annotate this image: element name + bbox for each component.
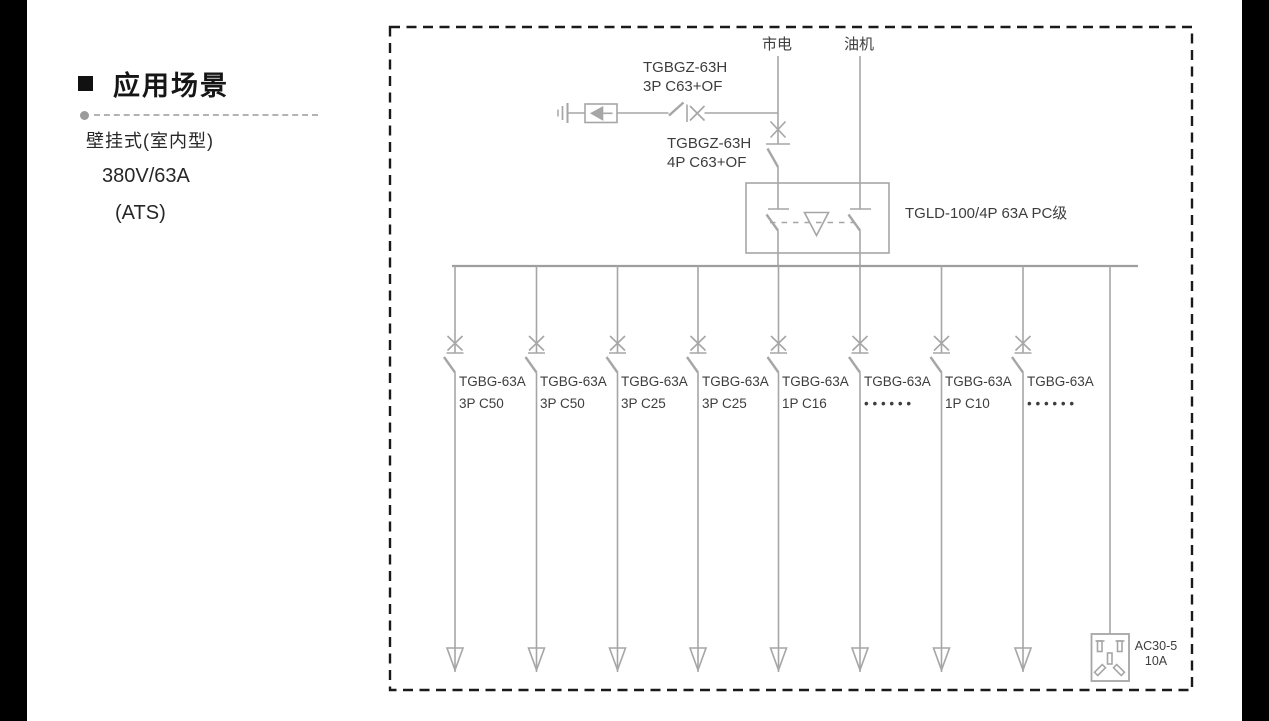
- feeder-branch-8: [1012, 266, 1032, 672]
- mains-incoming-line: [766, 56, 790, 209]
- feeder-branch-1: [444, 266, 464, 672]
- feeder-label-3: TGBG-63A 3P C25: [621, 374, 688, 412]
- spd-arrow-icon: [592, 107, 603, 119]
- feeder-label-1: TGBG-63A 3P C50: [459, 374, 526, 412]
- ats-actuator-triangle-icon: [805, 213, 829, 236]
- feeder-spec: 3P C50: [459, 396, 526, 412]
- feeder-model: TGBG-63A: [945, 374, 1012, 390]
- feeder-branch-5: [768, 266, 788, 672]
- feeder-model: TGBG-63A: [540, 374, 607, 390]
- socket-label: AC30-5 10A: [1131, 639, 1181, 669]
- spd-breaker-label: TGBGZ-63H 3P C63+OF: [643, 58, 727, 96]
- breaker-blade-icon: [768, 149, 779, 168]
- socket-rating: 10A: [1131, 654, 1181, 669]
- feeder-label-6: TGBG-63A • • • • • •: [864, 374, 931, 412]
- feeder-model: TGBG-63A: [782, 374, 849, 390]
- ats-switch-box: [746, 183, 889, 267]
- feeder-label-8: TGBG-63A • • • • • •: [1027, 374, 1094, 412]
- feeder-label-7: TGBG-63A 1P C10: [945, 374, 1012, 412]
- spd-branch: [558, 103, 778, 124]
- feeder-model: TGBG-63A: [1027, 374, 1094, 390]
- feeder-spec: 3P C25: [621, 396, 688, 412]
- feeder-label-2: TGBG-63A 3P C50: [540, 374, 607, 412]
- feeder-model: TGBG-63A: [702, 374, 769, 390]
- generator-source-label: 油机: [844, 36, 874, 54]
- feeder-label-4: TGBG-63A 3P C25: [702, 374, 769, 412]
- feeder-label-5: TGBG-63A 1P C16: [782, 374, 849, 412]
- spd-breaker-model: TGBGZ-63H: [643, 58, 727, 77]
- feeder-branch-2: [526, 266, 546, 672]
- feeder-spec: 3P C50: [540, 396, 607, 412]
- feeder-branch-3: [607, 266, 627, 672]
- feeder-spec: • • • • • •: [864, 396, 931, 412]
- breaker-blade-icon: [669, 103, 684, 116]
- feeder-spec: 1P C16: [782, 396, 849, 412]
- incoming-breaker-model: TGBGZ-63H: [667, 134, 751, 153]
- socket-model: AC30-5: [1131, 639, 1181, 654]
- breaker-x-icon: [690, 106, 705, 121]
- feeder-spec: 1P C10: [945, 396, 1012, 412]
- feeder-model: TGBG-63A: [459, 374, 526, 390]
- mains-source-label: 市电: [762, 36, 792, 54]
- incoming-breaker-label: TGBGZ-63H 4P C63+OF: [667, 134, 751, 172]
- ats-switch-label: TGLD-100/4P 63A PC级: [905, 205, 1067, 223]
- spd-breaker-spec: 3P C63+OF: [643, 77, 727, 96]
- feeder-model: TGBG-63A: [864, 374, 931, 390]
- single-line-diagram: 市电 油机 TGBGZ-63H 3P C63+OF TGBGZ-63H 4P C…: [0, 0, 1269, 721]
- feeder-spec: • • • • • •: [1027, 396, 1094, 412]
- feeder-model: TGBG-63A: [621, 374, 688, 390]
- feeder-spec: 3P C25: [702, 396, 769, 412]
- feeder-branch-4: [687, 266, 707, 672]
- socket-branch: [1092, 266, 1130, 681]
- feeder-branch-6: [849, 266, 869, 672]
- feeder-branch-7: [931, 266, 951, 672]
- incoming-breaker-spec: 4P C63+OF: [667, 153, 751, 172]
- diagram-dashed-border: [390, 27, 1192, 690]
- diagram-canvas: [0, 0, 1269, 721]
